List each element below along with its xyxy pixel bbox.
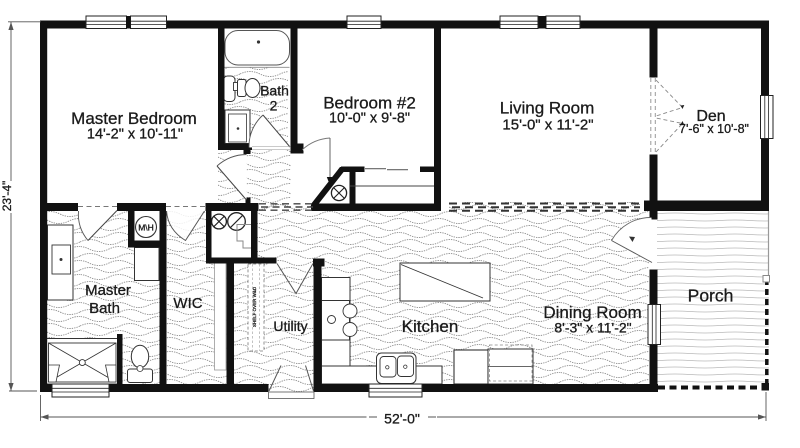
svg-text:Kitchen: Kitchen (402, 317, 459, 336)
svg-text:WIC: WIC (173, 295, 202, 312)
svg-text:14'-2" x 10'-11": 14'-2" x 10'-11" (87, 127, 183, 143)
svg-text:23'-4": 23'-4" (0, 181, 14, 212)
svg-text:Utility: Utility (273, 318, 307, 334)
svg-text:8'-3" x 11'-2": 8'-3" x 11'-2" (554, 320, 631, 336)
svg-text:10'-0" x 9'-8": 10'-0" x 9'-8" (329, 111, 410, 127)
svg-text:Bath: Bath (260, 83, 289, 99)
svg-text:Bath: Bath (89, 300, 120, 317)
svg-text:Living Room: Living Room (500, 99, 595, 118)
svg-text:7'-6" x 10'-8": 7'-6" x 10'-8" (679, 122, 749, 136)
svg-text:15'-0" x 11'-2": 15'-0" x 11'-2" (502, 117, 593, 134)
svg-text:Porch: Porch (688, 286, 734, 306)
svg-text:SHELF OVER W&D: SHELF OVER W&D (252, 286, 257, 327)
svg-text:Master Bedroom: Master Bedroom (71, 109, 197, 128)
svg-text:M\H: M\H (138, 223, 154, 233)
svg-text:2: 2 (270, 98, 278, 114)
svg-text:52'-0": 52'-0" (384, 411, 420, 427)
svg-text:Master: Master (85, 282, 131, 299)
